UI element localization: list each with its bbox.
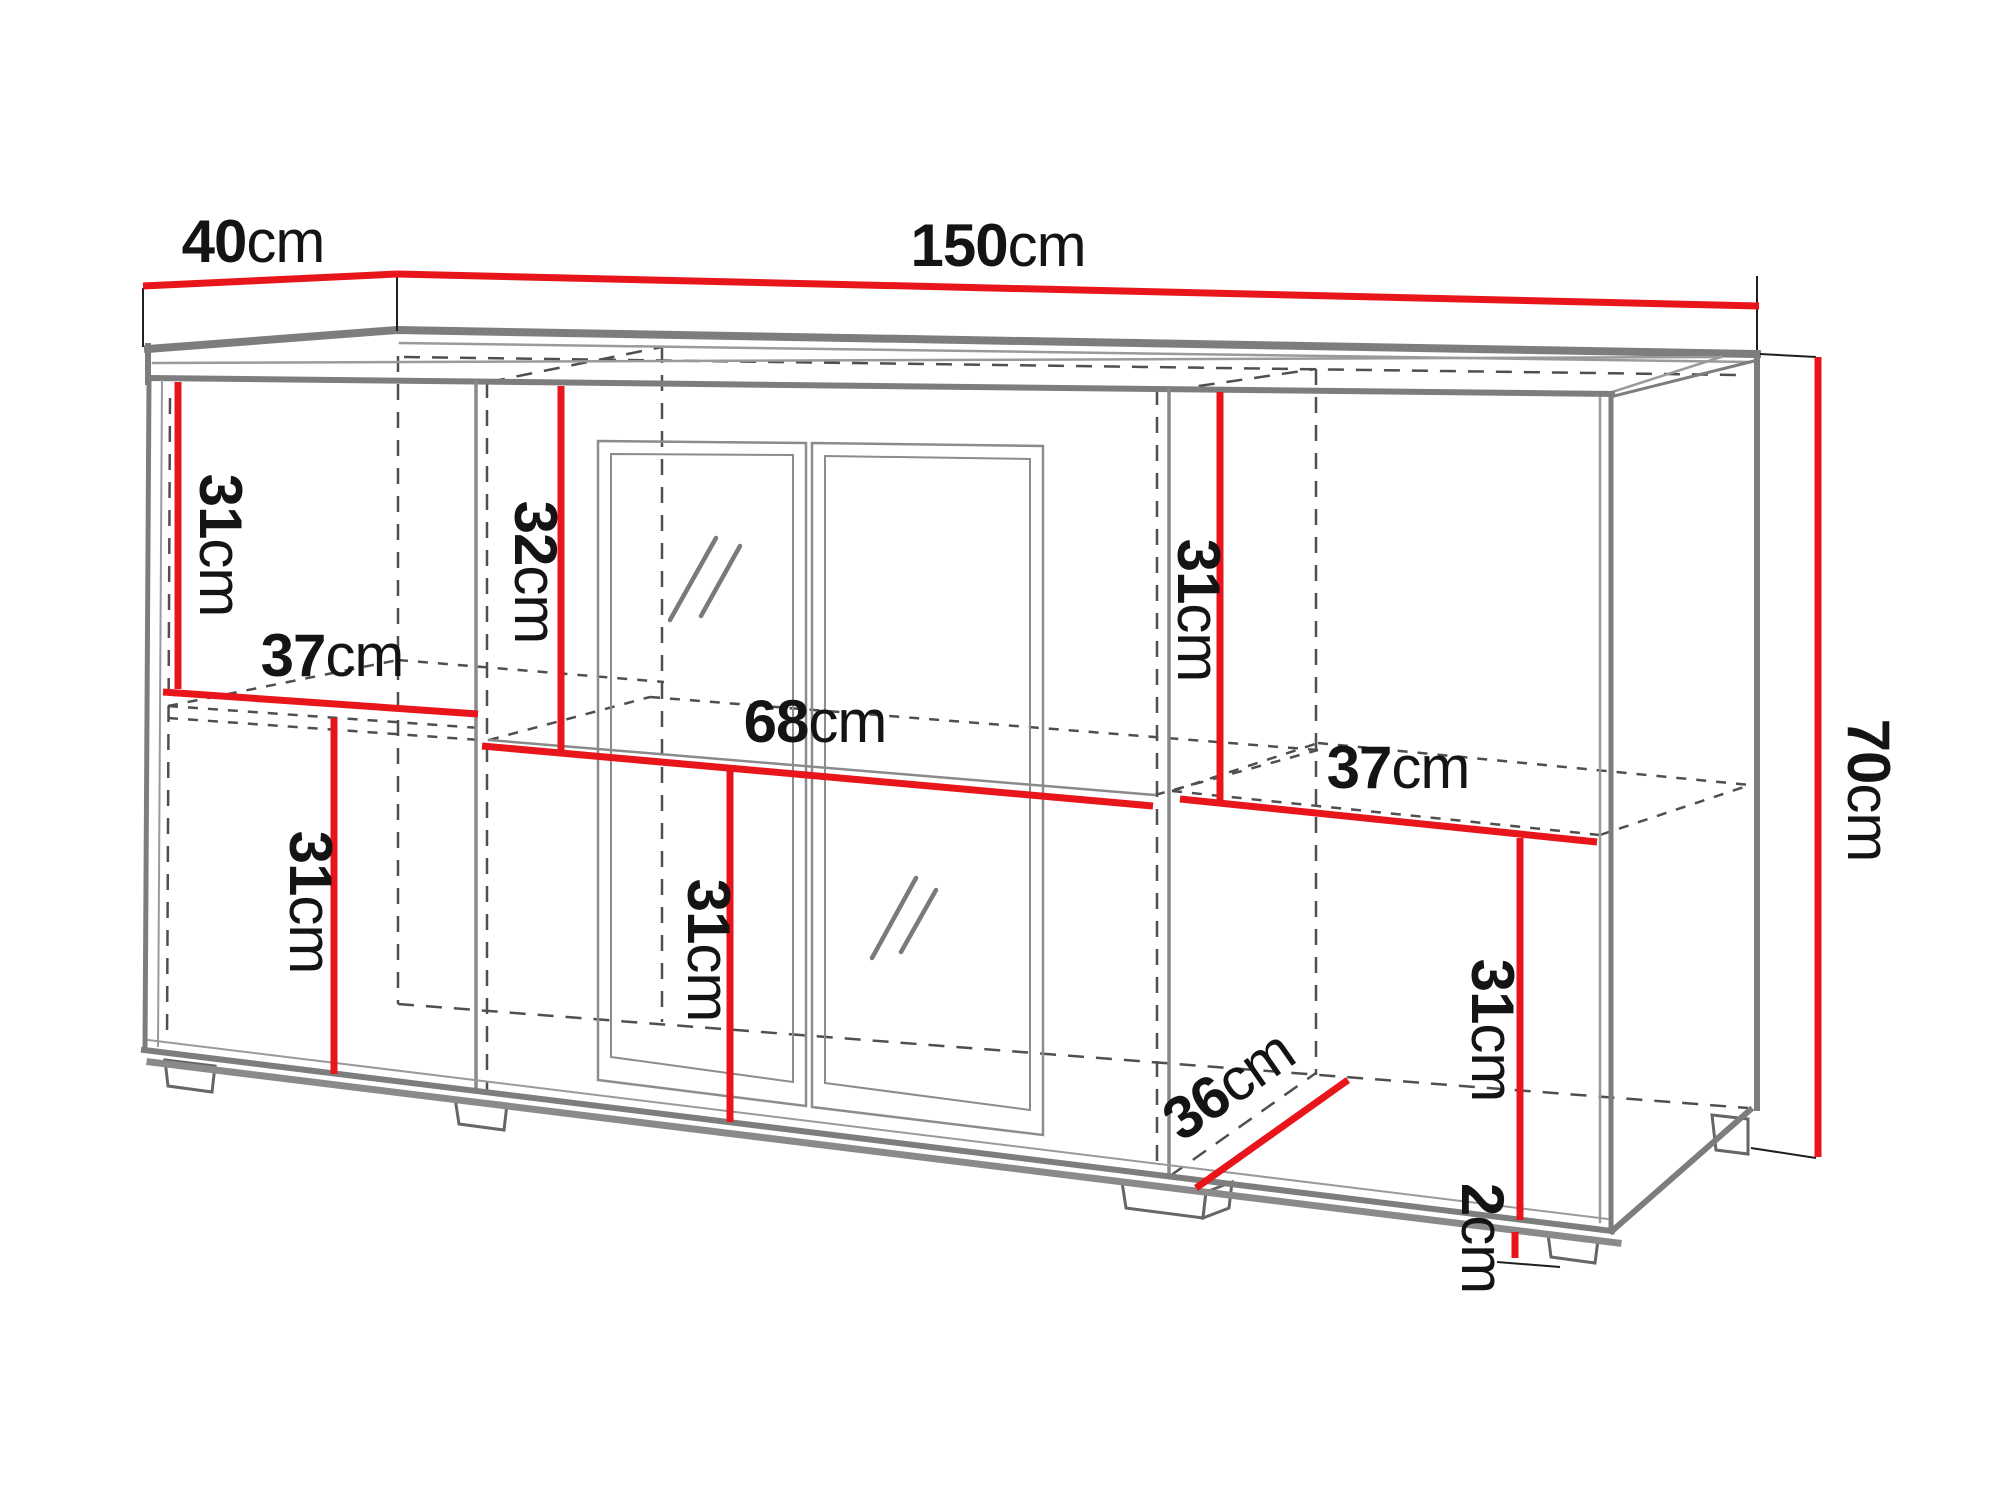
foot-5-back bbox=[1712, 1115, 1748, 1154]
dim-foot-height-label: 2cm bbox=[1449, 1183, 1516, 1293]
dim-width-label: 150cm bbox=[910, 212, 1085, 279]
dim-depth-label: 40cm bbox=[182, 208, 325, 275]
dim-left-lower-height-label: 31cm bbox=[277, 831, 344, 974]
sideboard-dimension-diagram: 40cm 150cm 70cm 31cm 32cm 31cm 37cm 68cm… bbox=[0, 0, 2000, 1500]
dim-right-shelf-width-label: 37cm bbox=[1327, 734, 1470, 801]
dim-left-shelf-width-label: 37cm bbox=[261, 622, 404, 689]
dim-center-upper-height-label: 32cm bbox=[502, 501, 569, 644]
dim-center-lower-height-label: 31cm bbox=[675, 879, 742, 1022]
dimension-diagram-page: 40cm 150cm 70cm 31cm 32cm 31cm 37cm 68cm… bbox=[0, 0, 2000, 1500]
dim-right-upper-height-label: 31cm bbox=[1165, 539, 1232, 682]
dim-center-shelf-width-label: 68cm bbox=[744, 688, 887, 755]
dim-left-upper-height-label: 31cm bbox=[187, 474, 254, 617]
dim-height-label: 70cm bbox=[1835, 719, 1902, 862]
dim-right-lower-height-label: 31cm bbox=[1459, 959, 1526, 1102]
